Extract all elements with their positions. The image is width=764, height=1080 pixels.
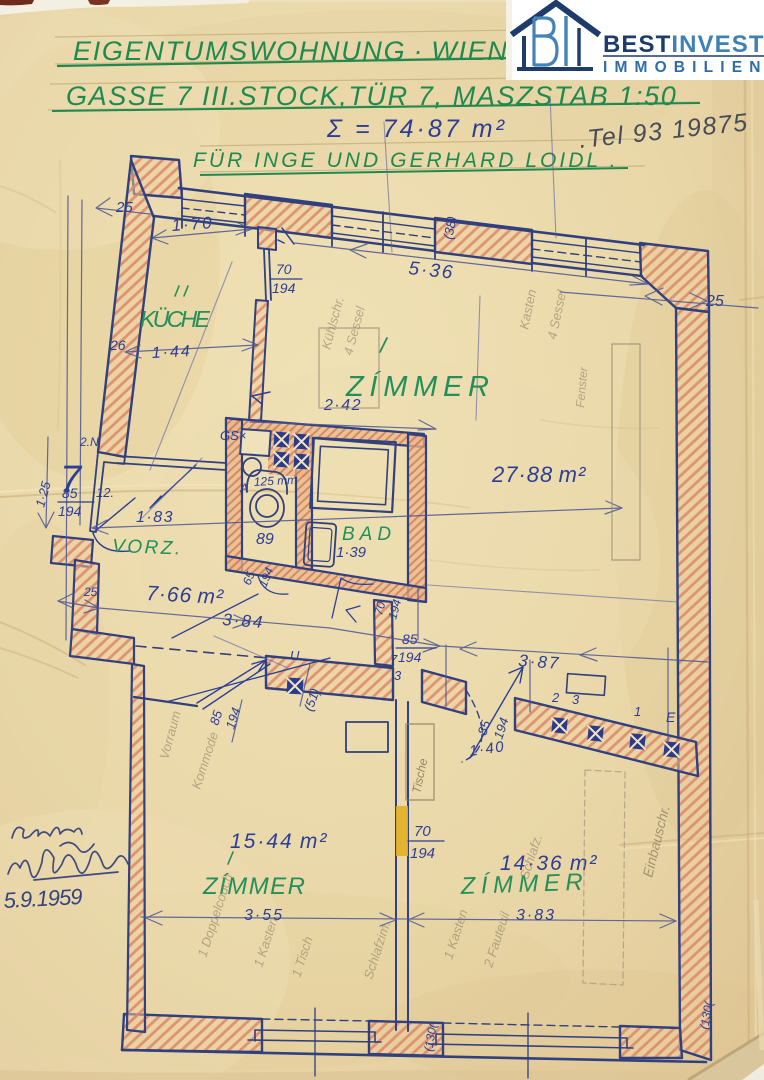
svg-text:VORZ.: VORZ. [112,536,183,559]
svg-text:7: 7 [390,652,398,667]
svg-text:BAD: BAD [342,524,396,545]
svg-text:1·83: 1·83 [136,509,174,526]
svg-text:3·83: 3·83 [516,907,556,924]
svg-text:3·84: 3·84 [222,610,265,632]
svg-text:85: 85 [402,631,418,647]
svg-text:70: 70 [276,261,292,277]
svg-text:E: E [666,709,676,725]
svg-text:3·87: 3·87 [518,651,561,673]
svg-text:1·44: 1·44 [151,343,192,362]
svg-text:27·88 m²: 27·88 m² [491,462,586,487]
svg-text:194: 194 [410,845,435,862]
svg-text:3: 3 [572,692,580,707]
svg-text:26: 26 [109,337,126,353]
svg-text:GS×: GS× [220,428,246,443]
svg-text:25: 25 [115,199,133,216]
svg-text:U: U [290,648,300,663]
svg-text:IMMOBILIEN: IMMOBILIEN [603,59,763,76]
svg-text:1: 1 [634,704,641,719]
svg-text:7·66 m²: 7·66 m² [146,582,225,609]
svg-text:25: 25 [83,585,98,599]
svg-text:1·39: 1·39 [336,544,367,561]
svg-text:194: 194 [272,280,296,296]
svg-text:5.9.1959: 5.9.1959 [3,884,84,913]
svg-text:A: A [239,481,248,495]
svg-text:70: 70 [414,823,431,840]
svg-text:12.: 12. [96,485,114,500]
svg-text:2.N: 2.N [79,435,99,449]
svg-text:194: 194 [398,649,422,665]
svg-text:15·44 m²: 15·44 m² [230,830,328,853]
svg-text:KÜCHE: KÜCHE [140,306,211,332]
svg-text:Σ = 74·87 m²: Σ = 74·87 m² [326,115,506,143]
svg-text:194: 194 [58,503,82,519]
svg-text:1·70: 1·70 [171,213,214,235]
svg-text:2: 2 [551,690,560,705]
svg-text:7: 7 [60,459,83,501]
svg-text:BESTINVEST: BESTINVEST [603,31,764,58]
svg-text:25: 25 [705,293,724,310]
svg-text:3: 3 [394,668,402,683]
svg-text:89: 89 [256,531,274,548]
svg-text:125 mm: 125 mm [253,473,297,489]
